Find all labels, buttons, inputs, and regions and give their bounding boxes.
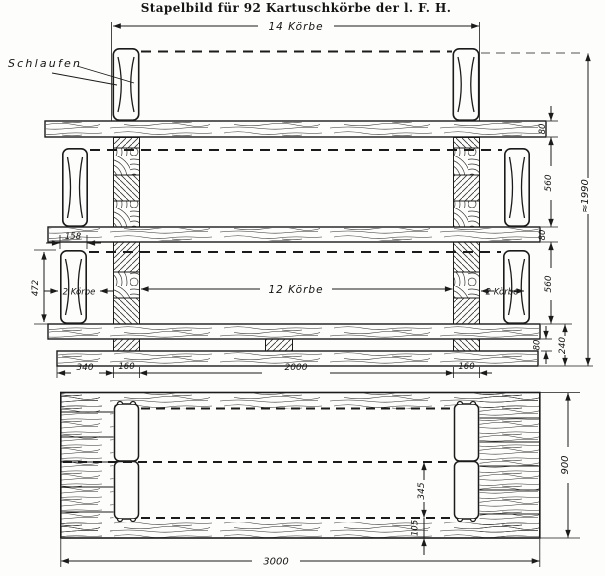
plan-post-left-upper xyxy=(115,404,139,461)
dim-basket-height: 472 xyxy=(31,250,56,324)
dim-12-koerbe: 12 Körbe xyxy=(141,284,453,296)
dim-label-2-koerbe-right: 2 Körbe xyxy=(486,288,519,298)
post-right xyxy=(454,138,480,352)
dim-14-koerbe: 14 Körbe xyxy=(112,21,480,121)
dim-2-koerbe-right: 2 Körbe xyxy=(481,288,524,298)
dim-label-2-koerbe-left: 2 Körbe xyxy=(63,288,96,298)
stacking-diagram: Stapelbild für 92 Kartuschkörbe der l. F… xyxy=(0,0,605,576)
dim-label-160-left: 160 xyxy=(118,362,134,372)
row-level-dashed-lines xyxy=(89,52,502,253)
dim-label-560-upper: 560 xyxy=(544,174,554,191)
basket-row2-left xyxy=(63,149,87,226)
dim-label-1990: ≈1990 xyxy=(580,179,591,213)
schlaufen-label: Schlaufen xyxy=(8,57,82,70)
dim-2-koerbe-left: 2 Körbe xyxy=(44,288,114,298)
dim-label-80-plank2: 80 xyxy=(538,230,548,241)
dim-label-80-plank1: 80 xyxy=(538,124,548,135)
dim-label-472: 472 xyxy=(31,280,41,296)
plan-view: 345 105 900 3000 xyxy=(61,393,580,568)
plan-post-right-upper xyxy=(455,404,479,461)
dim-label-105: 105 xyxy=(411,520,421,536)
dim-label-160-right: 160 xyxy=(458,362,474,372)
dim-right-chain: 80 560 80 560 80 240 ≈1990 xyxy=(481,53,593,366)
basket-row2-right xyxy=(505,149,529,226)
dim-label-3000: 3000 xyxy=(263,557,288,568)
technical-drawing-sheet: Stapelbild für 92 Kartuschkörbe der l. F… xyxy=(0,0,605,576)
plank-2 xyxy=(48,227,540,242)
plan-post-left-lower xyxy=(115,462,139,520)
plank-3 xyxy=(48,324,540,339)
dim-label-240: 240 xyxy=(558,337,568,354)
plan-post-right-lower xyxy=(455,462,479,520)
front-elevation xyxy=(45,49,546,366)
dim-label-345: 345 xyxy=(417,482,427,499)
basket-top-left xyxy=(113,49,138,120)
dim-label-158: 158 xyxy=(65,232,82,242)
dim-label-560-lower: 560 xyxy=(544,275,554,292)
dim-label-14-koerbe: 14 Körbe xyxy=(268,21,323,33)
dim-label-80-spacer: 80 xyxy=(533,340,543,351)
spacer-block-center xyxy=(266,339,293,351)
post-left xyxy=(114,138,140,352)
dim-label-12-koerbe: 12 Körbe xyxy=(268,284,323,296)
drawing-title: Stapelbild für 92 Kartuschkörbe der l. F… xyxy=(141,1,452,15)
plank-1 xyxy=(45,121,546,137)
basket-top-right xyxy=(453,49,478,120)
dim-label-340: 340 xyxy=(76,363,93,373)
dim-label-900: 900 xyxy=(560,455,571,474)
dim-label-2000: 2000 xyxy=(285,363,308,373)
